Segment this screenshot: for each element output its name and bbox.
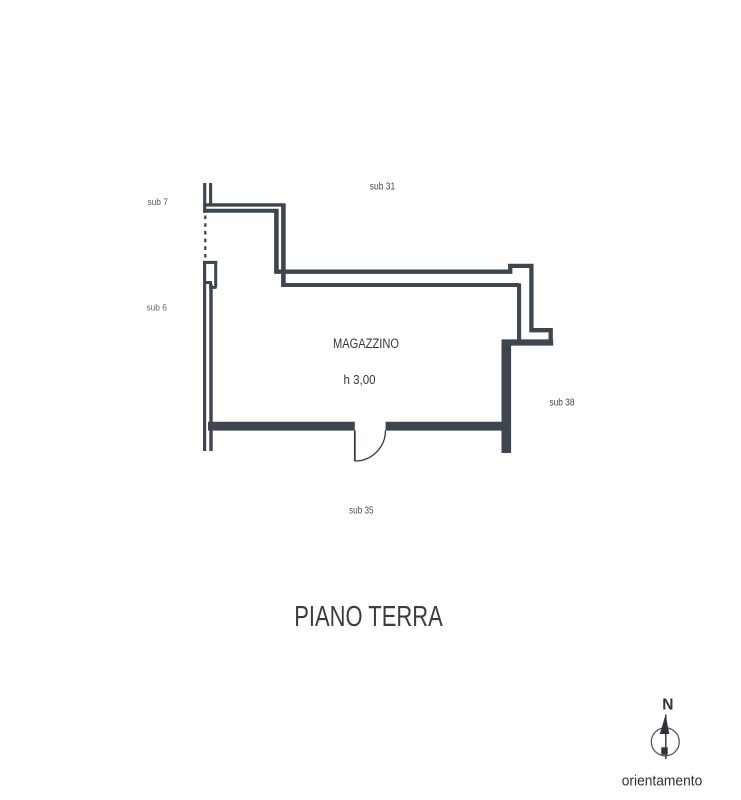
svg-text:sub 6: sub 6 (146, 302, 167, 313)
svg-text:sub 7: sub 7 (147, 197, 168, 208)
svg-text:orientamento: orientamento (622, 773, 703, 790)
svg-text:h 3,00: h 3,00 (344, 373, 376, 387)
svg-text:sub 31: sub 31 (370, 181, 396, 192)
svg-text:MAGAZZINO: MAGAZZINO (333, 336, 399, 351)
svg-text:sub 35: sub 35 (349, 505, 374, 517)
svg-text:PIANO TERRA: PIANO TERRA (294, 601, 443, 633)
svg-text:sub 38: sub 38 (550, 397, 575, 408)
svg-text:N: N (662, 697, 673, 714)
